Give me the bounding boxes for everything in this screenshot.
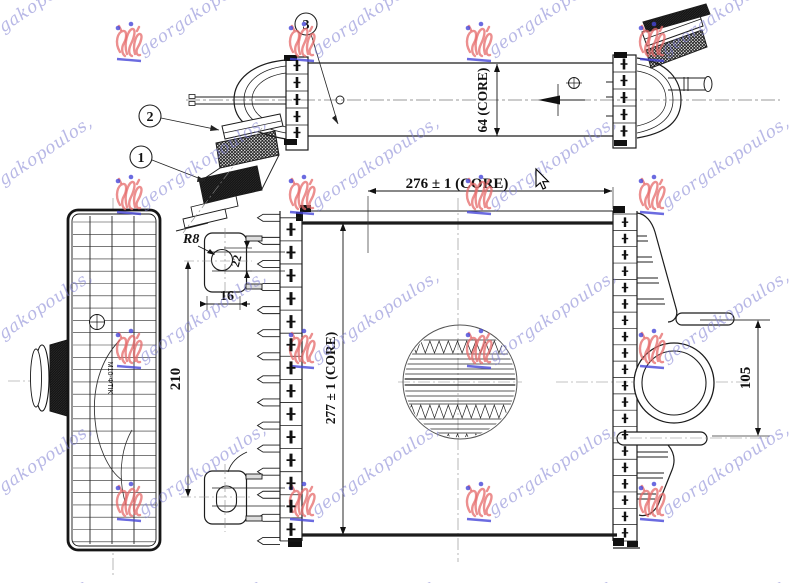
watermark-tile: georgakopoulos, (289, 113, 444, 214)
watermark-text: georgakopoulos, (308, 573, 444, 583)
watermark-tile: georgakopoulos, (466, 267, 621, 368)
svg-text:105: 105 (738, 367, 754, 390)
watermark-text: georgakopoulos, (308, 420, 444, 521)
watermark-tile: georgakopoulos, (289, 420, 444, 521)
watermark-text: georgakopoulos, (0, 113, 96, 214)
watermark-text: georgakopoulos, (485, 0, 621, 60)
watermark-tile: georgakopoulos, (639, 573, 794, 583)
watermark-tile: georgakopoulos, (116, 0, 271, 61)
callout-2: 2 (139, 105, 219, 131)
side-marking: M10-ΦTIK (106, 362, 113, 395)
watermark-tile: georgakopoulos, (116, 573, 271, 583)
watermark-text: georgakopoulos, (308, 0, 444, 60)
watermark-tile: georgakopoulos, (466, 573, 621, 583)
watermark-tile: georgakopoulos, (289, 573, 444, 583)
watermark-tile: georgakopoulos, (639, 113, 794, 214)
svg-text:R8: R8 (182, 232, 199, 247)
watermark-tile: georgakopoulos, (0, 573, 96, 583)
watermark-text: georgakopoulos, (485, 573, 621, 583)
svg-text:64 (CORE): 64 (CORE) (475, 68, 490, 133)
dim-bracket-spacing: 210 (168, 261, 191, 497)
watermark-tile: georgakopoulos, (0, 113, 96, 214)
watermark-text: georgakopoulos, (135, 573, 271, 583)
watermark-text: georgakopoulos, (308, 267, 444, 368)
watermark-text: georgakopoulos, (658, 0, 794, 60)
watermark-tile: georgakopoulos, (639, 267, 794, 368)
watermark-text: georgakopoulos, (0, 0, 96, 60)
svg-text:210: 210 (168, 368, 184, 391)
watermark-text: georgakopoulos, (0, 573, 96, 583)
watermark-text: georgakopoulos, (485, 113, 621, 214)
watermark-text: georgakopoulos, (308, 113, 444, 214)
watermark-tile: georgakopoulos, (466, 0, 621, 61)
svg-text:276 ± 1 (CORE): 276 ± 1 (CORE) (406, 176, 509, 192)
technical-drawing-page: 64 (CORE) 3 2 1 M10-ΦTIK (0, 0, 800, 583)
watermark-text: georgakopoulos, (135, 0, 271, 60)
watermark-tile: georgakopoulos, (466, 420, 621, 521)
watermark-tile: georgakopoulos, (0, 0, 96, 61)
watermark-text: georgakopoulos, (485, 267, 621, 368)
watermark-text: georgakopoulos, (658, 573, 794, 583)
watermark-text: georgakopoulos, (485, 420, 621, 521)
svg-text:2: 2 (147, 110, 154, 125)
intercooler-technical-drawing: 64 (CORE) 3 2 1 M10-ΦTIK (0, 0, 800, 583)
watermark-tile: georgakopoulos, (289, 267, 444, 368)
svg-text:1: 1 (138, 151, 145, 166)
watermark-text: georgakopoulos, (658, 113, 794, 214)
